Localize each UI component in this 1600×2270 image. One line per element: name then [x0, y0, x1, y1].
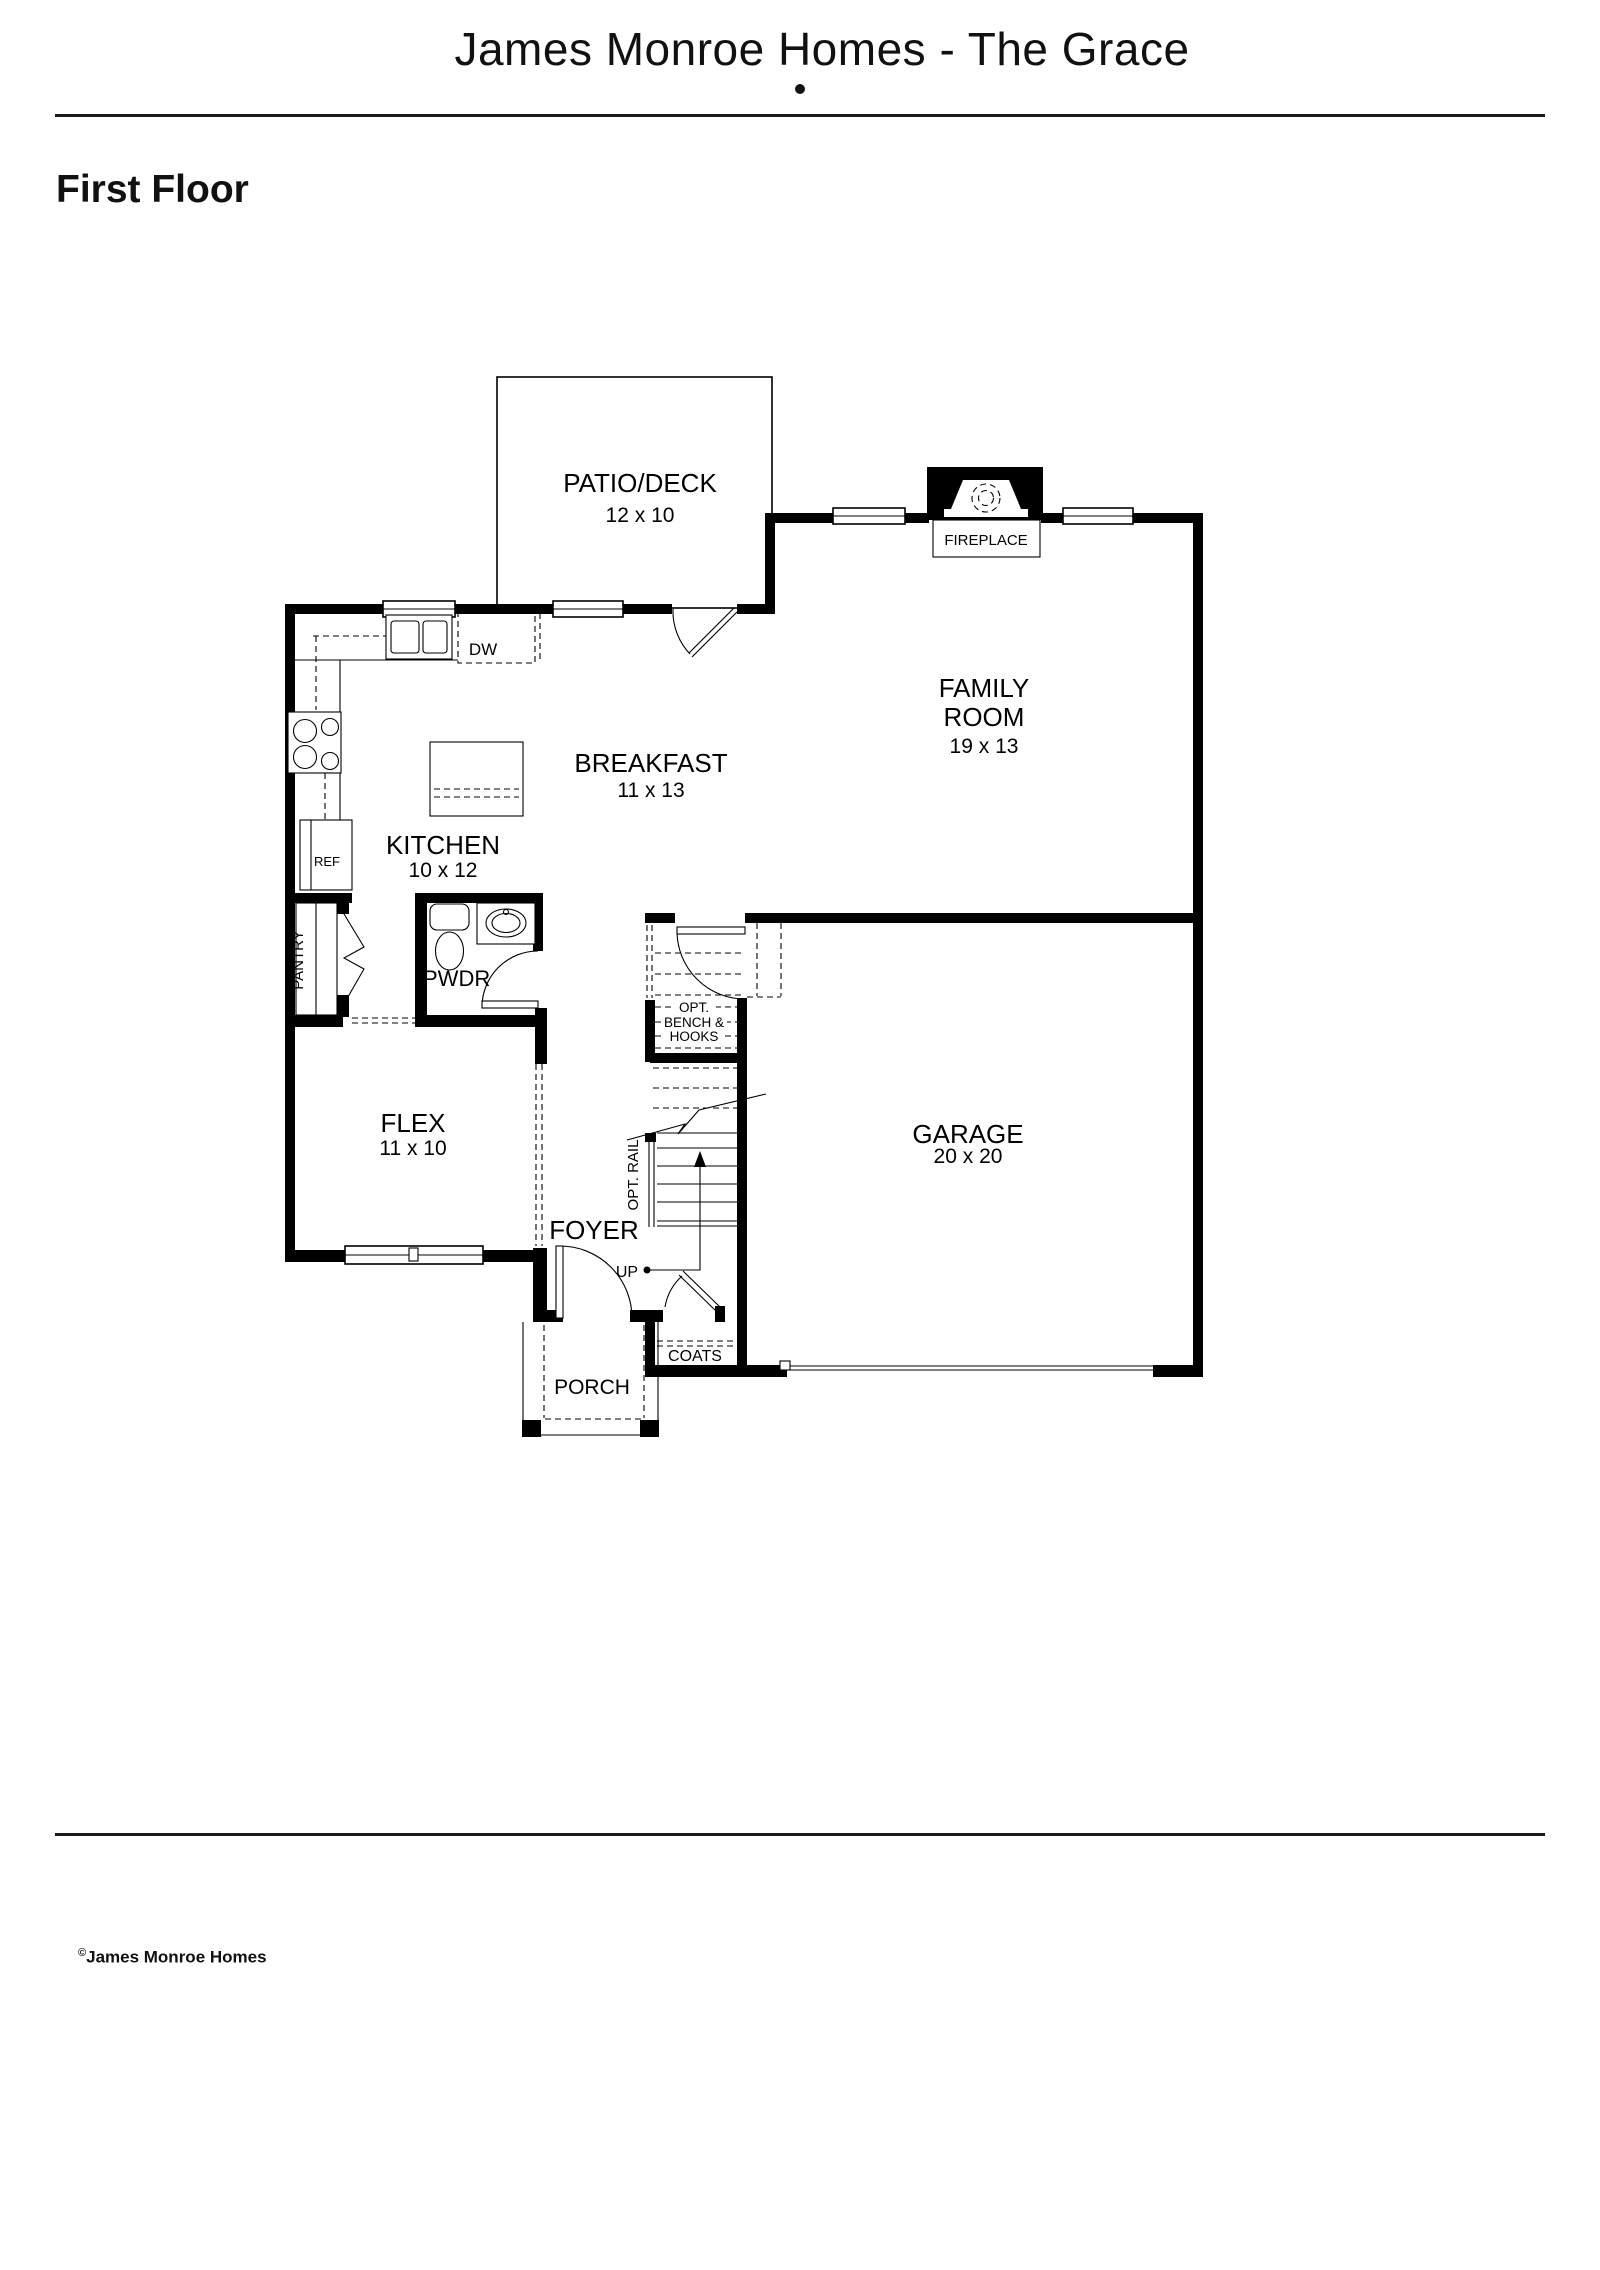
porch-label: PORCH [554, 1376, 630, 1399]
pantry-bifold-door [341, 909, 364, 1009]
garage-entry-door [677, 927, 745, 999]
breakfast-window [553, 601, 623, 617]
opt-bench-label-line3: HOOKS [670, 1029, 719, 1044]
kitchen-sink-icon [386, 615, 452, 659]
patio-label: PATIO/DECK [563, 468, 717, 498]
garage-dims: 20 x 20 [934, 1145, 1003, 1168]
opt-bench-label-line2: BENCH & [664, 1015, 724, 1030]
refrigerator-label: REF [314, 854, 340, 869]
flex-window [345, 1246, 483, 1264]
porch-post [522, 1420, 541, 1437]
opt-bench-label-line1: OPT. [679, 1000, 709, 1015]
family-room-label-line1: FAMILY [939, 673, 1030, 703]
powder-room-label: PWDR [423, 966, 490, 991]
flex-label: FLEX [380, 1108, 445, 1138]
toilet-icon [430, 904, 469, 970]
coat-closet [657, 1341, 735, 1346]
flex-dims: 11 x 10 [379, 1137, 446, 1160]
kitchen-dims: 10 x 12 [409, 859, 478, 882]
family-room-window-left [833, 508, 905, 524]
opt-rail-label: OPT. RAIL [625, 1140, 642, 1211]
dishwasher-label: DW [469, 640, 497, 659]
porch-post [640, 1420, 659, 1437]
pantry-label: PANTRY [290, 930, 307, 989]
cooktop-icon [288, 712, 341, 773]
patio-dims: 12 x 10 [606, 504, 675, 527]
floor-plan-page: James Monroe Homes - The Grace First Flo… [0, 0, 1600, 2270]
breakfast-table-icon [430, 742, 523, 816]
kitchen-label: KITCHEN [386, 830, 500, 860]
coat-closet-door [665, 1271, 720, 1311]
breakfast-label: BREAKFAST [574, 748, 727, 778]
coats-label: COATS [668, 1348, 722, 1365]
powder-room-door [482, 951, 538, 1008]
garage-door-opening [780, 1361, 1153, 1370]
family-room-dims: 19 x 13 [950, 735, 1019, 758]
foyer-label: FOYER [549, 1215, 639, 1245]
sink-icon [477, 903, 535, 944]
patio-door [673, 608, 737, 657]
floor-plan-drawing: PATIO/DECK 12 x 10 FAMILY ROOM 19 x 13 B… [0, 0, 1600, 2270]
front-door [556, 1246, 632, 1318]
breakfast-dims: 11 x 13 [617, 779, 684, 802]
doors [341, 608, 745, 1318]
kitchen-fixtures [288, 613, 540, 1015]
family-room-window-right [1063, 508, 1133, 524]
powder-room-fixtures [430, 903, 535, 970]
family-room-label-line2: ROOM [944, 702, 1025, 732]
up-label: UP [616, 1264, 638, 1281]
up-arrow-icon [644, 1151, 707, 1274]
fireplace-label: FIREPLACE [944, 532, 1027, 549]
